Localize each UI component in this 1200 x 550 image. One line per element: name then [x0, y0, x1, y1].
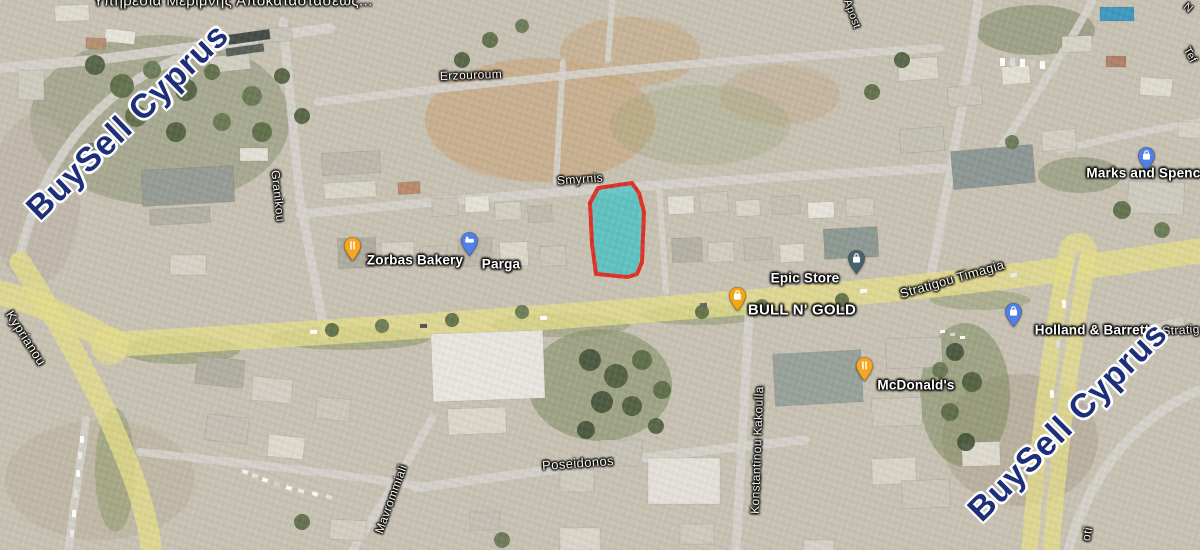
poi-label[interactable]: Parga	[482, 257, 521, 272]
poi-pin[interactable]	[1004, 302, 1023, 333]
poi-pin[interactable]	[855, 356, 874, 387]
lodging-pin-icon	[460, 231, 479, 257]
poi-label[interactable]: Marks and Spencer	[1086, 166, 1200, 181]
shopping-pin-icon	[847, 249, 866, 275]
map-text-label: Tef	[1181, 45, 1199, 65]
map-overlay: Υπηρεσία Μερίμνης Αποκαταστάσεως...Erzou…	[0, 0, 1200, 550]
restaurant-pin-icon	[343, 236, 362, 262]
street-label: Konstantinou Kakoulla	[748, 386, 766, 514]
street-label: Poseidonos	[542, 453, 615, 473]
poi-label[interactable]: Zorbas Bakery	[367, 253, 463, 268]
poi-label[interactable]: Holland & Barrett	[1035, 323, 1149, 338]
street-label: Erzouroum	[440, 67, 503, 83]
street-label: Smyrnis	[556, 170, 603, 187]
shopping-pin-icon	[728, 286, 747, 312]
buysell-cyprus-watermark: BuySell Cyprus	[960, 314, 1175, 529]
poi-label[interactable]: McDonald's	[877, 378, 954, 393]
street-label: Mavrommiali	[372, 463, 410, 536]
map-text-label: N	[1181, 1, 1195, 16]
poi-pin[interactable]	[343, 236, 362, 267]
street-label: Granikou	[268, 169, 287, 222]
poi-label[interactable]: BULL N' GOLD	[748, 302, 856, 319]
poi-pin[interactable]	[728, 286, 747, 317]
map-text-label: oti	[1079, 526, 1095, 542]
street-label: Stratigou Timagia	[898, 257, 1006, 301]
poi-pin[interactable]	[460, 231, 479, 262]
street-label: Kyprianou	[3, 308, 49, 368]
poi-label[interactable]: Epic Store	[771, 271, 840, 286]
buysell-cyprus-watermark: BuySell Cyprus	[19, 16, 237, 228]
map-text-label: Apost	[841, 0, 863, 30]
poi-pin[interactable]	[847, 249, 866, 280]
map-text-label: Υπηρεσία Μερίμνης Αποκαταστάσεως...	[93, 0, 372, 10]
shopping-pin-icon	[1004, 302, 1023, 328]
map-text-label: Stratig	[1162, 322, 1200, 338]
restaurant-pin-icon	[855, 356, 874, 382]
satellite-map[interactable]: Υπηρεσία Μερίμνης Αποκαταστάσεως...Erzou…	[0, 0, 1200, 550]
